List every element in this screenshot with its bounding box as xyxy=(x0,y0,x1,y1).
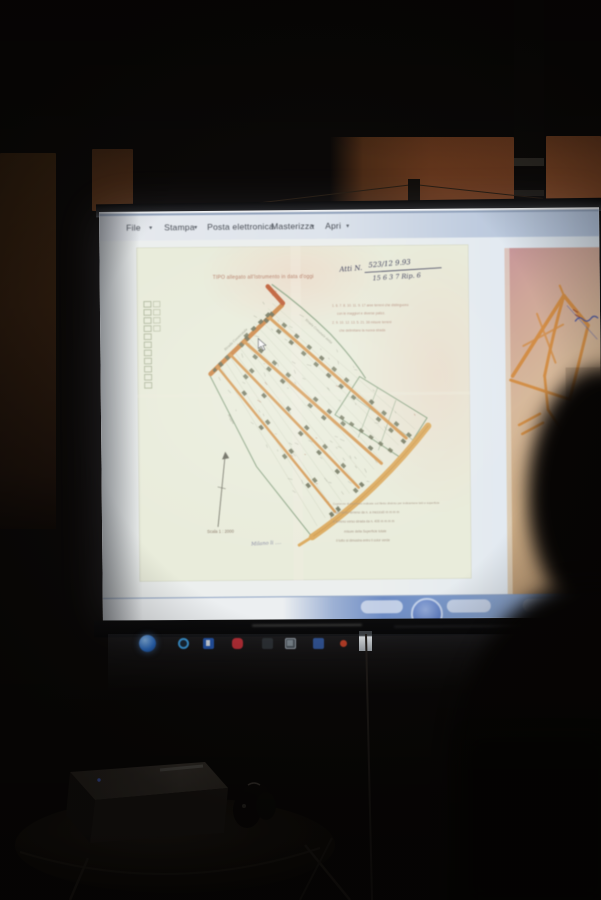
svg-text:che delimitano la nuova strada: che delimitano la nuova strada xyxy=(339,328,385,332)
menu-item-posta-elettronica[interactable]: Posta elettronica xyxy=(207,221,274,232)
map1-title: TIPO allegato all'Istrumento in data d'o… xyxy=(213,274,314,281)
wall-panel-above-screen xyxy=(330,137,514,205)
svg-text:il tutto si dimostra entro il: il tutto si dimostra entro il color verd… xyxy=(336,538,390,543)
map1-scale-label: Scala 1 : 2000 xyxy=(207,529,234,534)
svg-text:I lotti verso terreno da n. a: I lotti verso terreno da n. a mezzodì m … xyxy=(333,510,400,515)
chevron-down-icon[interactable]: ▾ xyxy=(311,223,314,230)
svg-text:con le maggiori e diverse pali: con le maggiori e diverse palizz. xyxy=(337,311,385,315)
chevron-down-icon[interactable]: ▾ xyxy=(346,223,349,230)
wall-panel-top-right xyxy=(546,136,601,206)
photo-of-projection-room: File ▾ Stampa ▾ Posta elettronica Master… xyxy=(0,0,601,900)
map1-paper xyxy=(136,244,471,581)
menu-item-stampa[interactable]: Stampa xyxy=(164,222,195,232)
screen-mount-pole xyxy=(514,0,544,205)
wall-panel-left xyxy=(0,153,56,529)
person-silhouette-corner xyxy=(470,740,601,900)
svg-text:1. 6. 7. 8. 10. 11. 9. 17 aree: 1. 6. 7. 8. 10. 11. 9. 17 aree terreni c… xyxy=(332,303,409,308)
svg-text:2. 9. 10. 12. 13. 5. 21. 36 mi: 2. 9. 10. 12. 13. 5. 21. 36 misure terre… xyxy=(332,320,392,325)
cadastral-map-scan: TIPO allegato all'Istrumento in data d'o… xyxy=(136,244,471,581)
projector-led xyxy=(97,778,100,781)
chevron-down-icon[interactable]: ▾ xyxy=(149,224,152,231)
projection-screen: File ▾ Stampa ▾ Posta elettronica Master… xyxy=(99,207,601,622)
svg-text:Il terreno verso strada da n.: Il terreno verso strada da n. 400 m m m … xyxy=(333,519,395,524)
next-button[interactable] xyxy=(447,599,491,612)
svg-text:misure della Superficie totale: misure della Superficie totale xyxy=(344,529,387,533)
menu-item-file[interactable]: File xyxy=(126,223,141,233)
chevron-down-icon[interactable]: ▾ xyxy=(194,224,197,231)
previous-button[interactable] xyxy=(361,600,403,613)
wall-panel-left-upper xyxy=(92,149,133,211)
menu-item-apri[interactable]: Apri xyxy=(325,221,341,231)
projected-desktop: File ▾ Stampa ▾ Posta elettronica Master… xyxy=(99,207,601,622)
menu-item-masterizza[interactable]: Masterizza xyxy=(271,221,314,231)
projector xyxy=(66,762,228,843)
screen-pull-cord xyxy=(366,634,372,900)
